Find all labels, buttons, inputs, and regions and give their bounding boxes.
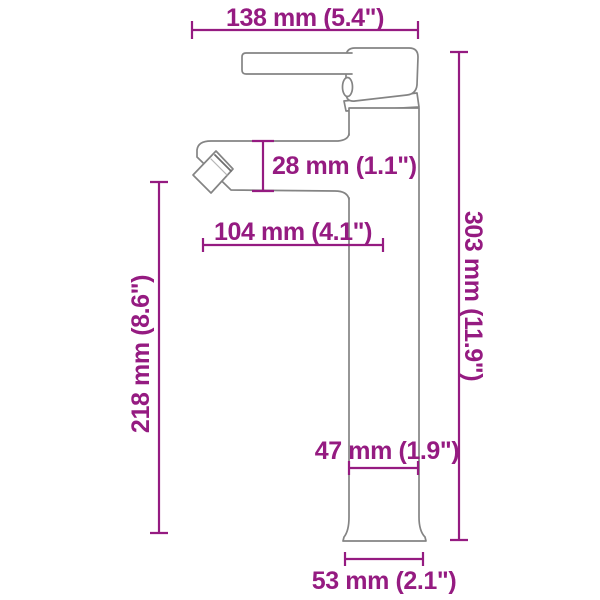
dim-base-width-line <box>345 552 423 566</box>
dimension-diagram: 138 mm (5.4") 28 mm (1.1") 104 mm (4.1")… <box>0 0 600 600</box>
dim-base-width-label: 53 mm (2.1") <box>312 567 457 595</box>
faucet-dimension-svg: 138 mm (5.4") 28 mm (1.1") 104 mm (4.1")… <box>0 0 600 600</box>
dimension-lines <box>150 21 468 566</box>
dim-spout-reach-label: 104 mm (4.1") <box>214 218 372 246</box>
faucet-handle-pivot <box>343 78 353 97</box>
dim-outlet-height-label: 218 mm (8.6") <box>127 275 155 433</box>
dim-body-width-label: 47 mm (1.9") <box>315 437 460 465</box>
faucet-handle <box>242 53 352 74</box>
dimension-labels: 138 mm (5.4") 28 mm (1.1") 104 mm (4.1")… <box>127 4 487 595</box>
dim-spout-height-label: 28 mm (1.1") <box>272 152 417 180</box>
dim-total-height-label: 303 mm (11.9") <box>459 211 487 381</box>
dim-total-width-label: 138 mm (5.4") <box>226 4 384 32</box>
faucet-head <box>346 48 418 101</box>
